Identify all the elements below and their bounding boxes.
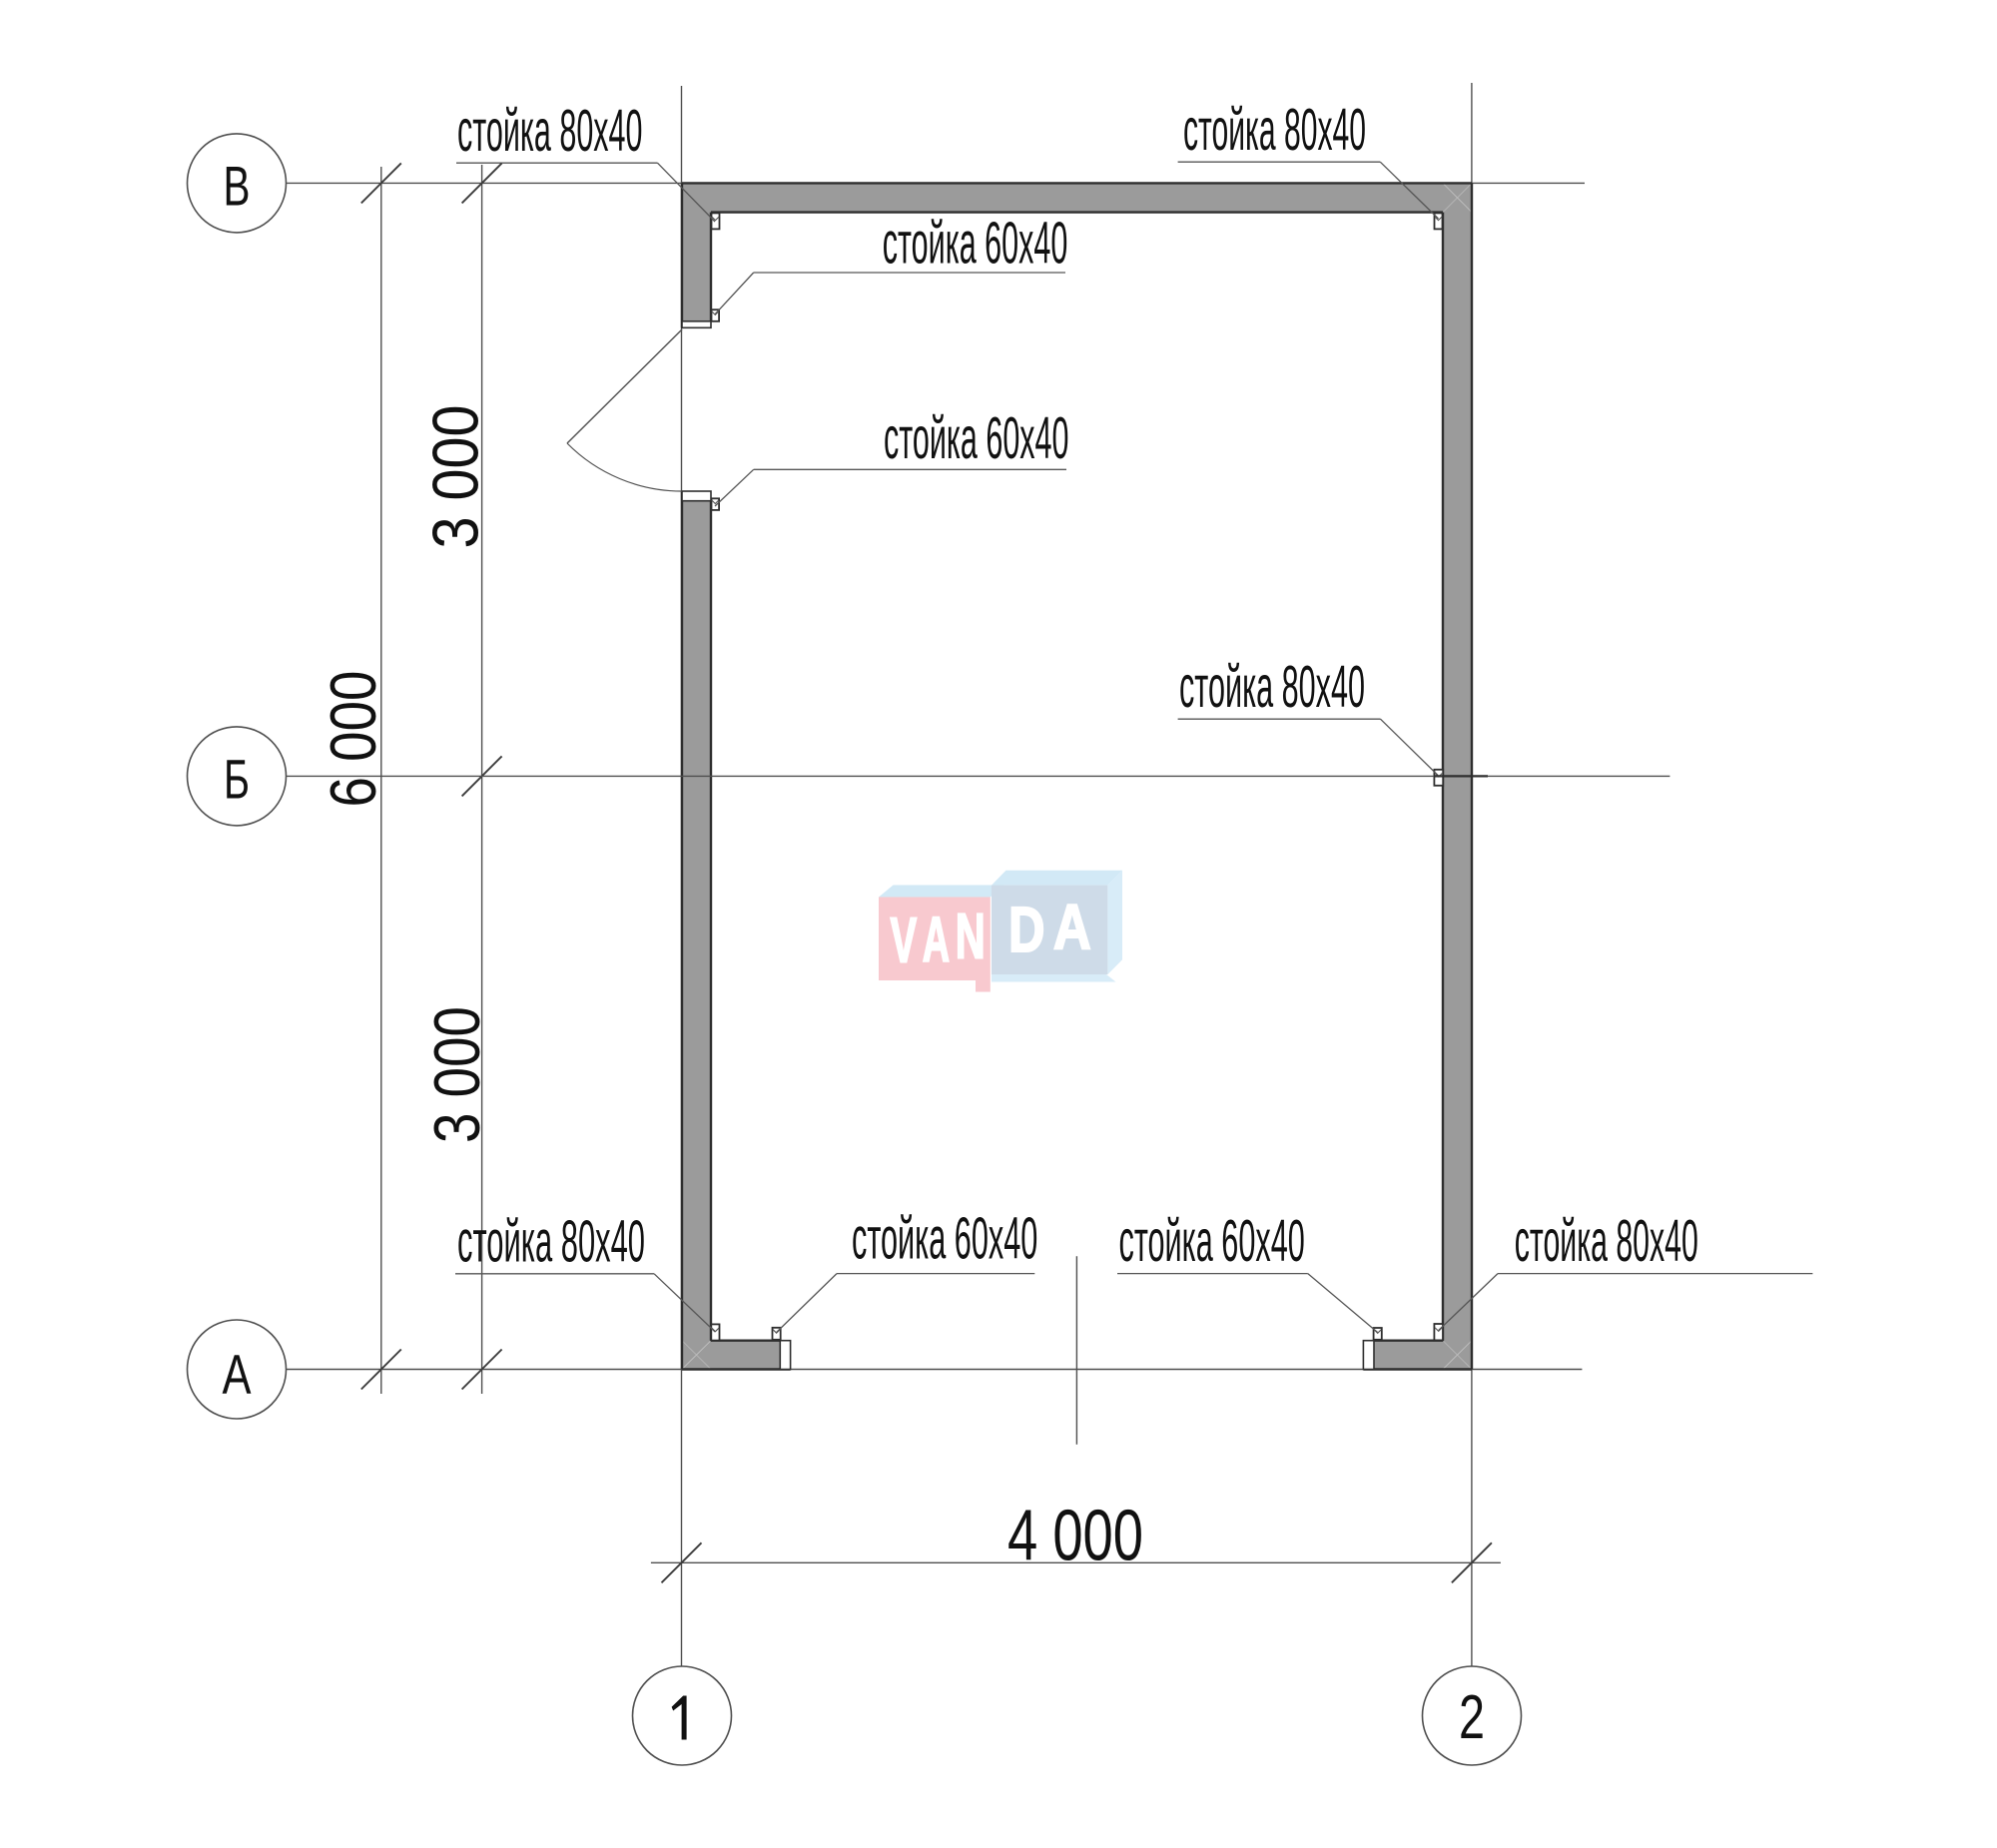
- svg-text:3 000: 3 000: [420, 1006, 493, 1143]
- svg-text:N: N: [956, 901, 986, 972]
- svg-text:6 000: 6 000: [317, 671, 389, 808]
- svg-text:4 000: 4 000: [1007, 1497, 1143, 1576]
- svg-text:А: А: [223, 1343, 252, 1406]
- svg-text:A: A: [1053, 891, 1091, 962]
- svg-text:стойка 80х40: стойка 80х40: [1179, 654, 1365, 720]
- svg-text:стойка 80х40: стойка 80х40: [457, 1209, 645, 1275]
- svg-text:A: A: [923, 904, 950, 975]
- svg-text:стойка 60х40: стойка 60х40: [852, 1206, 1037, 1272]
- svg-text:D: D: [1008, 894, 1045, 965]
- svg-text:стойка 60х40: стойка 60х40: [884, 405, 1069, 471]
- svg-text:стойка 80х40: стойка 80х40: [457, 98, 643, 164]
- svg-text:стойка 60х40: стойка 60х40: [883, 210, 1068, 276]
- svg-text:стойка 60х40: стойка 60х40: [1119, 1208, 1305, 1274]
- svg-text:3 000: 3 000: [419, 405, 492, 549]
- svg-text:В: В: [224, 155, 251, 218]
- svg-text:V: V: [891, 905, 918, 976]
- svg-text:стойка 80х40: стойка 80х40: [1515, 1208, 1698, 1274]
- svg-text:Б: Б: [224, 748, 250, 811]
- svg-text:стойка 80х40: стойка 80х40: [1183, 97, 1366, 163]
- svg-text:2: 2: [1459, 1683, 1485, 1752]
